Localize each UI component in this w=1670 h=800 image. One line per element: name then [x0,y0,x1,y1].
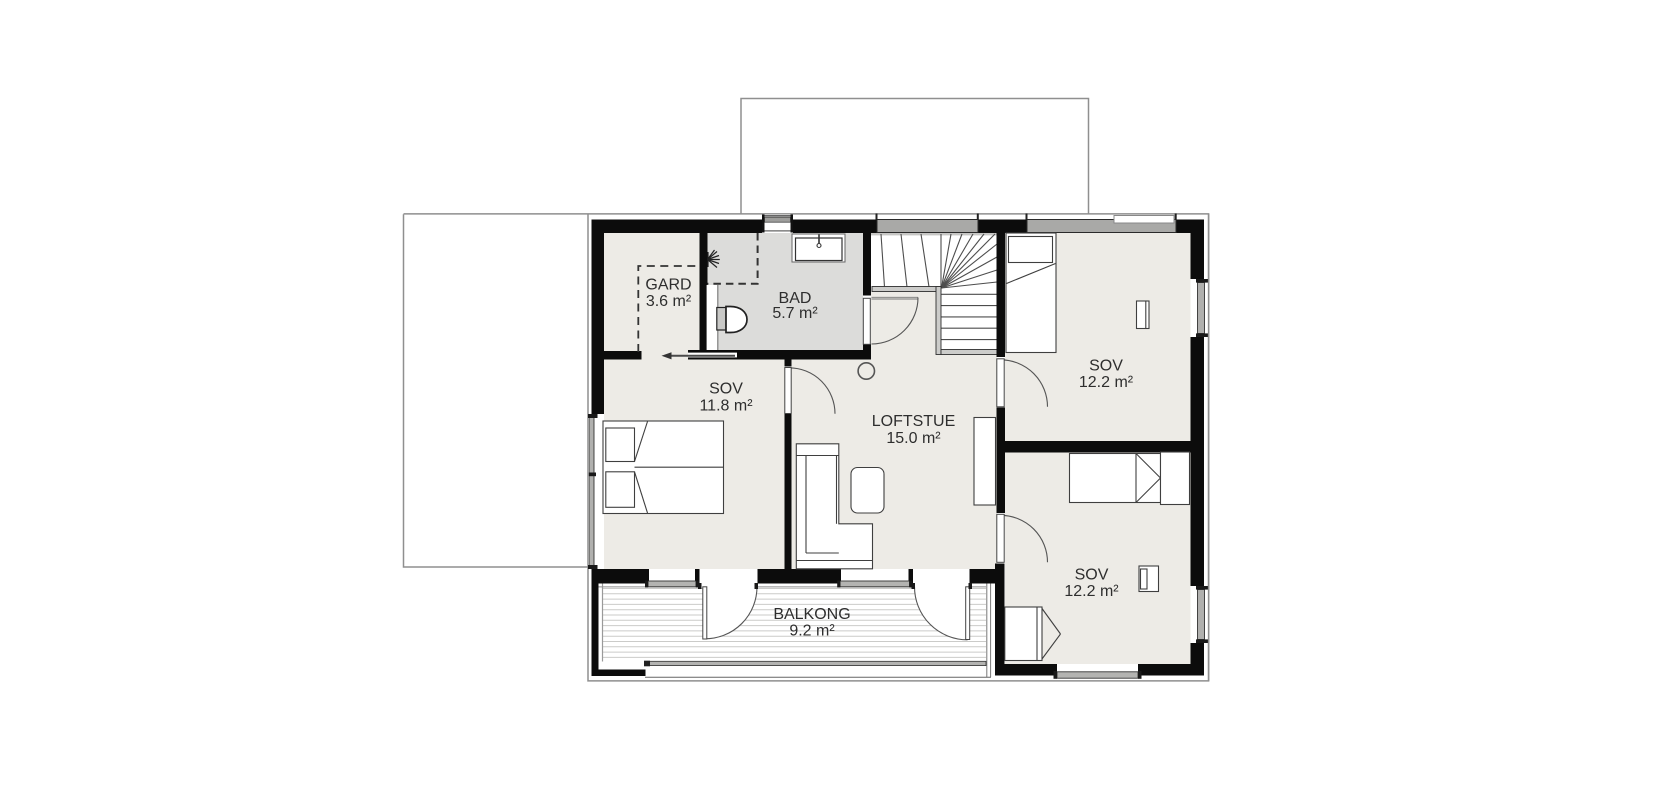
svg-text:5.7 m²: 5.7 m² [772,305,818,322]
svg-text:15.0 m²: 15.0 m² [886,430,941,447]
svg-text:LOFTSTUE: LOFTSTUE [872,413,956,430]
svg-text:3.6 m²: 3.6 m² [646,293,692,310]
svg-text:12.2 m²: 12.2 m² [1064,583,1119,600]
svg-text:12.2 m²: 12.2 m² [1079,374,1134,391]
svg-text:11.8 m²: 11.8 m² [699,397,753,414]
svg-text:SOV: SOV [1089,357,1123,374]
svg-text:9.2 m²: 9.2 m² [789,622,835,639]
svg-text:SOV: SOV [1075,566,1109,583]
svg-text:SOV: SOV [709,380,743,397]
svg-text:GARD: GARD [645,276,691,293]
svg-text:BALKONG: BALKONG [773,606,850,623]
